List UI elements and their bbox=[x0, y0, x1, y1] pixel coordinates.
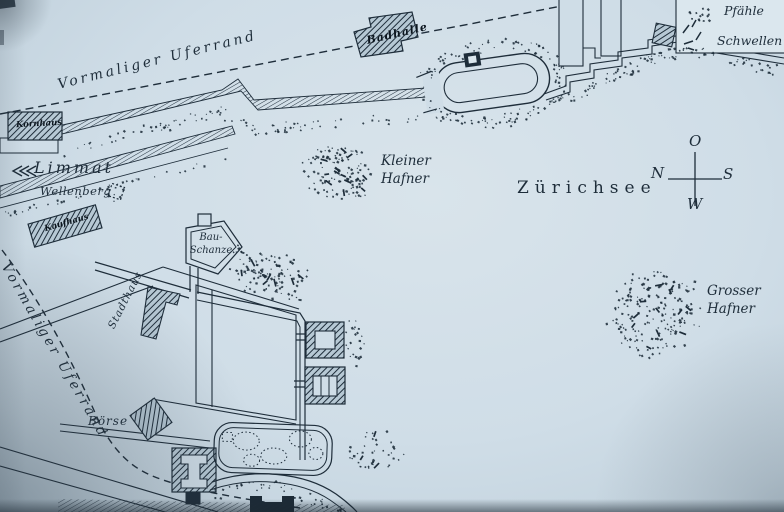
garden-parterre bbox=[213, 422, 333, 476]
quay-pavilions bbox=[294, 322, 345, 404]
river-flow-arrows-icon bbox=[13, 166, 36, 176]
boerse-building bbox=[130, 398, 172, 440]
shore-hut bbox=[652, 23, 676, 47]
scan-artifacts bbox=[0, 0, 16, 45]
stadthaus-building bbox=[141, 287, 180, 339]
grosser-hafner-line2: Hafner bbox=[707, 301, 755, 317]
bau-schanze-line1: Bau- bbox=[199, 232, 222, 243]
label-limmat: Limmat bbox=[34, 158, 114, 179]
compass-west: W bbox=[687, 195, 702, 215]
kleiner-hafner-line2: Hafner bbox=[381, 171, 429, 187]
label-kleiner-hafner: Kleiner Hafner bbox=[381, 153, 431, 188]
label-grosser-hafner: Grosser Hafner bbox=[707, 283, 761, 318]
scanned-harbor-map: Vormaliger Uferrand Vormaliger Uferrand … bbox=[0, 0, 784, 512]
label-boerse: Börse bbox=[88, 414, 128, 430]
legend-label-pfaehle: Pfähle bbox=[724, 3, 764, 19]
label-wellenberg: Wellenberg bbox=[40, 184, 111, 199]
kleiner-hafner-line1: Kleiner bbox=[381, 153, 431, 169]
legend-label-schwellen: Schwellen bbox=[717, 33, 782, 49]
compass-east: O bbox=[689, 132, 701, 152]
grosser-hafner-line1: Grosser bbox=[707, 283, 761, 299]
bathhouse-block bbox=[172, 448, 216, 504]
label-zurichsee: Zürichsee bbox=[517, 177, 657, 199]
harbour-mole bbox=[412, 29, 573, 139]
compass-north: N bbox=[651, 164, 664, 184]
label-bau-schanze: Bau- Schanze bbox=[188, 231, 234, 257]
compass-south: S bbox=[723, 165, 733, 185]
bau-schanze-line2: Schanze bbox=[190, 245, 232, 256]
